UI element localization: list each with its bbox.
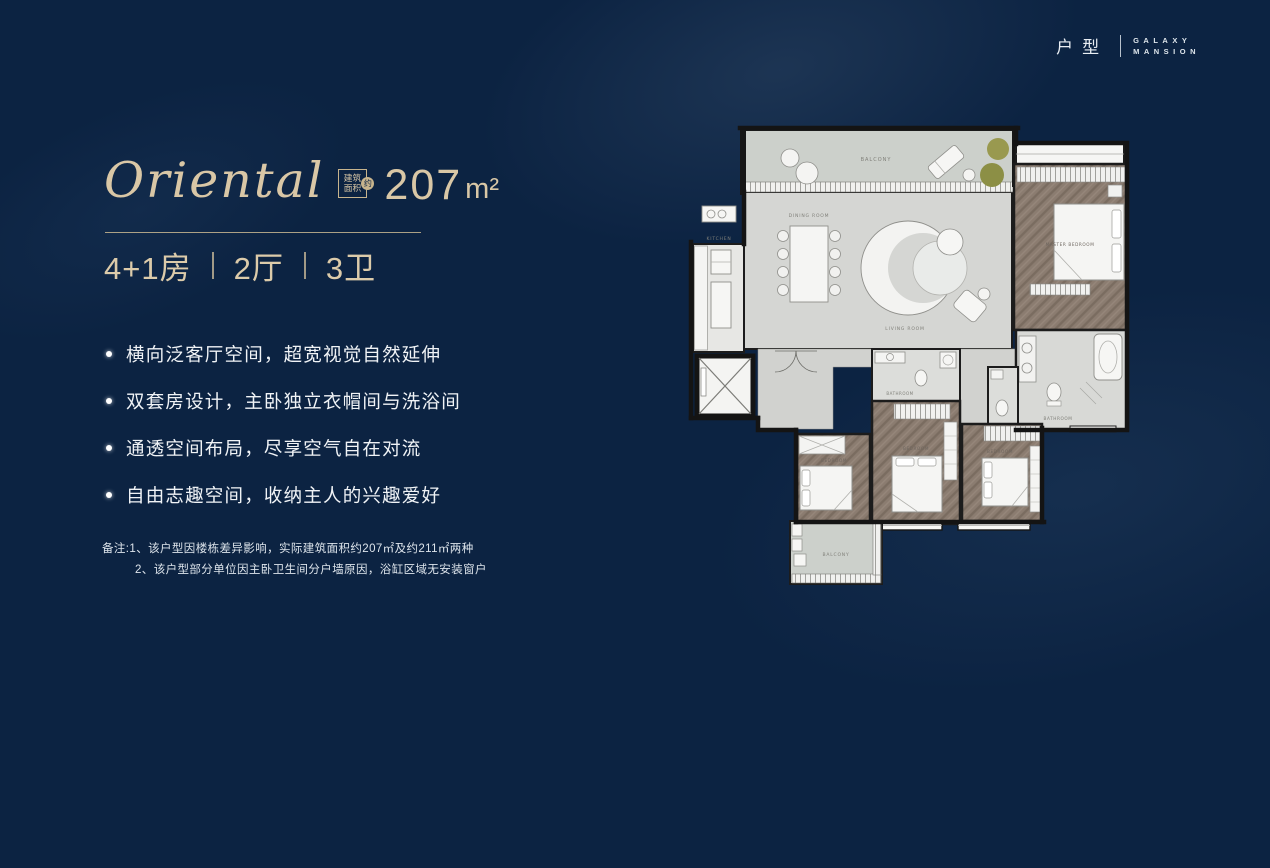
room-label-bedroom2: BEDROOM	[903, 446, 929, 451]
feature-text: 通透空间布局，尽享空气自在对流	[126, 435, 422, 461]
room-label-bedroom1: BEDROOM	[821, 458, 847, 463]
bedroom-3: BEDROOM	[962, 424, 1042, 521]
feature-text: 自由志趣空间，收纳主人的兴趣爱好	[126, 482, 441, 508]
room-label-kitchen: KITCHEN	[706, 236, 731, 242]
area-value: 207	[384, 166, 462, 205]
bullet-dot-icon	[106, 351, 112, 357]
room-label-balcony2: BALCONY	[822, 552, 849, 558]
room-label-master-bath: BATHROOM	[1043, 416, 1072, 421]
room-label-bath: BATHROOM	[886, 391, 913, 396]
room-label-dining: DINING ROOM	[789, 213, 830, 219]
brand-en-line1: GALAXY	[1133, 36, 1200, 45]
bullet-dot-icon	[106, 492, 112, 498]
bullet-dot-icon	[106, 445, 112, 451]
spec-divider	[304, 252, 306, 279]
bedroom-1: BEDROOM	[797, 434, 870, 522]
area-badge: 建筑 面积 约	[338, 169, 374, 198]
area-unit: m²	[465, 175, 499, 204]
feature-list: 横向泛客厅空间，超宽视觉自然延伸 双套房设计，主卧独立衣帽间与洗浴间 通透空间布…	[106, 344, 461, 532]
area-badge-circle: 约	[361, 177, 374, 190]
balcony-top: BALCONY	[740, 127, 1018, 195]
elevator-shaft	[697, 356, 753, 416]
floorplan: BALCONY DINING ROOM LIVING ROOM KIT	[678, 118, 1138, 606]
spec-halls: 2厅	[234, 243, 284, 288]
headline: Oriental 建筑 面积 约 207 m²	[104, 156, 499, 205]
list-item: 自由志趣空间，收纳主人的兴趣爱好	[106, 485, 461, 504]
brand-divider	[1120, 35, 1121, 57]
bathroom-3	[988, 367, 1018, 424]
balcony-bottom: BALCONY	[790, 521, 882, 584]
bullet-dot-icon	[106, 398, 112, 404]
brand-logo: 户型 GALAXY MANSION	[1050, 33, 1200, 58]
brand-en-label: GALAXY MANSION	[1133, 36, 1200, 56]
feature-text: 横向泛客厅空间，超宽视觉自然延伸	[126, 341, 441, 367]
master-bedroom: MASTER BEDROOM	[1014, 144, 1128, 330]
spec-line: 4+1房 2厅 3卫	[104, 243, 376, 288]
footnotes: 备注:1、该户型因楼栋差异影响，实际建筑面积约207㎡及约211㎡两种 2、该户…	[102, 539, 487, 580]
floorplan-svg: BALCONY DINING ROOM LIVING ROOM KIT	[678, 118, 1138, 606]
room-label-master-bedroom: MASTER BEDROOM	[1046, 242, 1095, 247]
kitchen: KITCHEN	[693, 206, 744, 352]
spec-baths: 3卫	[326, 243, 376, 288]
area-badge-line1: 建筑	[344, 174, 361, 183]
spec-divider	[212, 252, 214, 279]
brand-en-line2: MANSION	[1133, 47, 1200, 56]
room-label-bedroom3: BEDROOM	[987, 449, 1013, 454]
footnote-line2: 2、该户型部分单位因主卧卫生间分户墙原因，浴缸区域无安装窗户	[135, 560, 487, 581]
unit-title: Oriental	[104, 156, 324, 205]
gold-divider-line	[105, 232, 421, 233]
footnote-line1: 备注:1、该户型因楼栋差异影响，实际建筑面积约207㎡及约211㎡两种	[102, 539, 487, 560]
spec-rooms: 4+1房	[104, 243, 192, 288]
shared-bathroom: BATHROOM	[872, 349, 960, 401]
room-label-balcony: BALCONY	[861, 157, 892, 163]
list-item: 通透空间布局，尽享空气自在对流	[106, 438, 461, 457]
feature-text: 双套房设计，主卧独立衣帽间与洗浴间	[126, 388, 461, 414]
brand-cn-label: 户型	[1050, 33, 1108, 58]
list-item: 双套房设计，主卧独立衣帽间与洗浴间	[106, 391, 461, 410]
area-badge-line2: 面积	[344, 184, 361, 193]
list-item: 横向泛客厅空间，超宽视觉自然延伸	[106, 344, 461, 363]
bedroom-2: BEDROOM	[872, 401, 960, 524]
master-bathroom: BATHROOM	[1016, 330, 1128, 432]
room-label-living: LIVING ROOM	[885, 326, 924, 332]
